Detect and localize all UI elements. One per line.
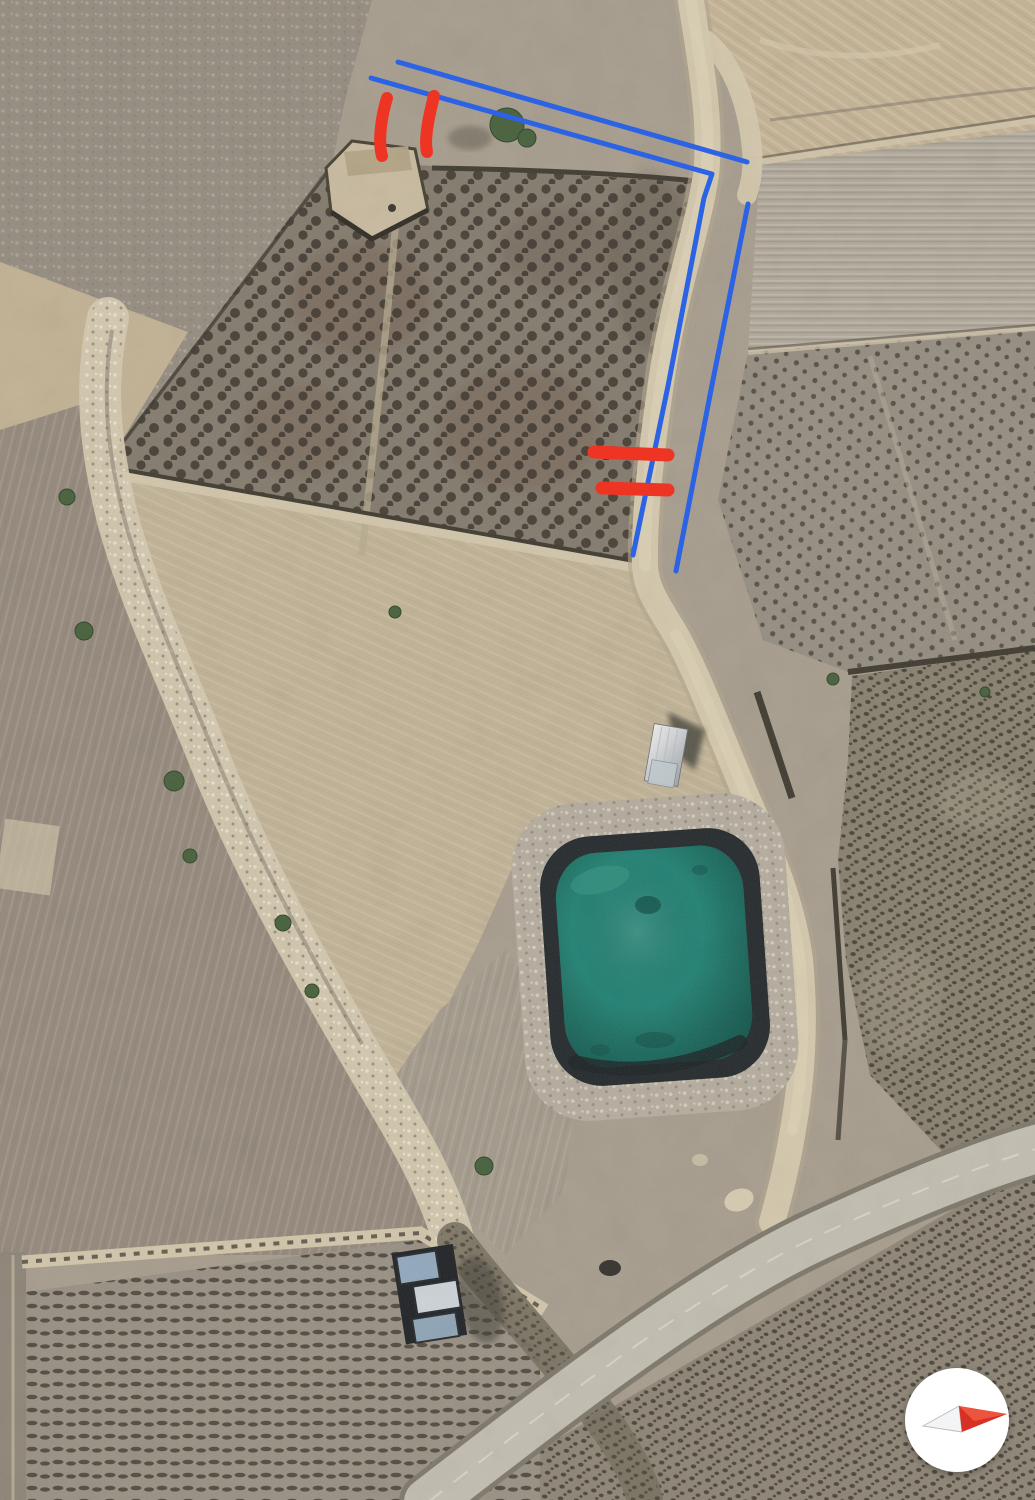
red-tick-1 <box>380 98 387 156</box>
red-bar-1 <box>594 452 668 455</box>
satellite-map-view <box>0 0 1035 1500</box>
red-bar-2 <box>602 488 668 490</box>
mottle-overlay <box>0 0 1035 1500</box>
compass-button[interactable] <box>905 1368 1009 1472</box>
